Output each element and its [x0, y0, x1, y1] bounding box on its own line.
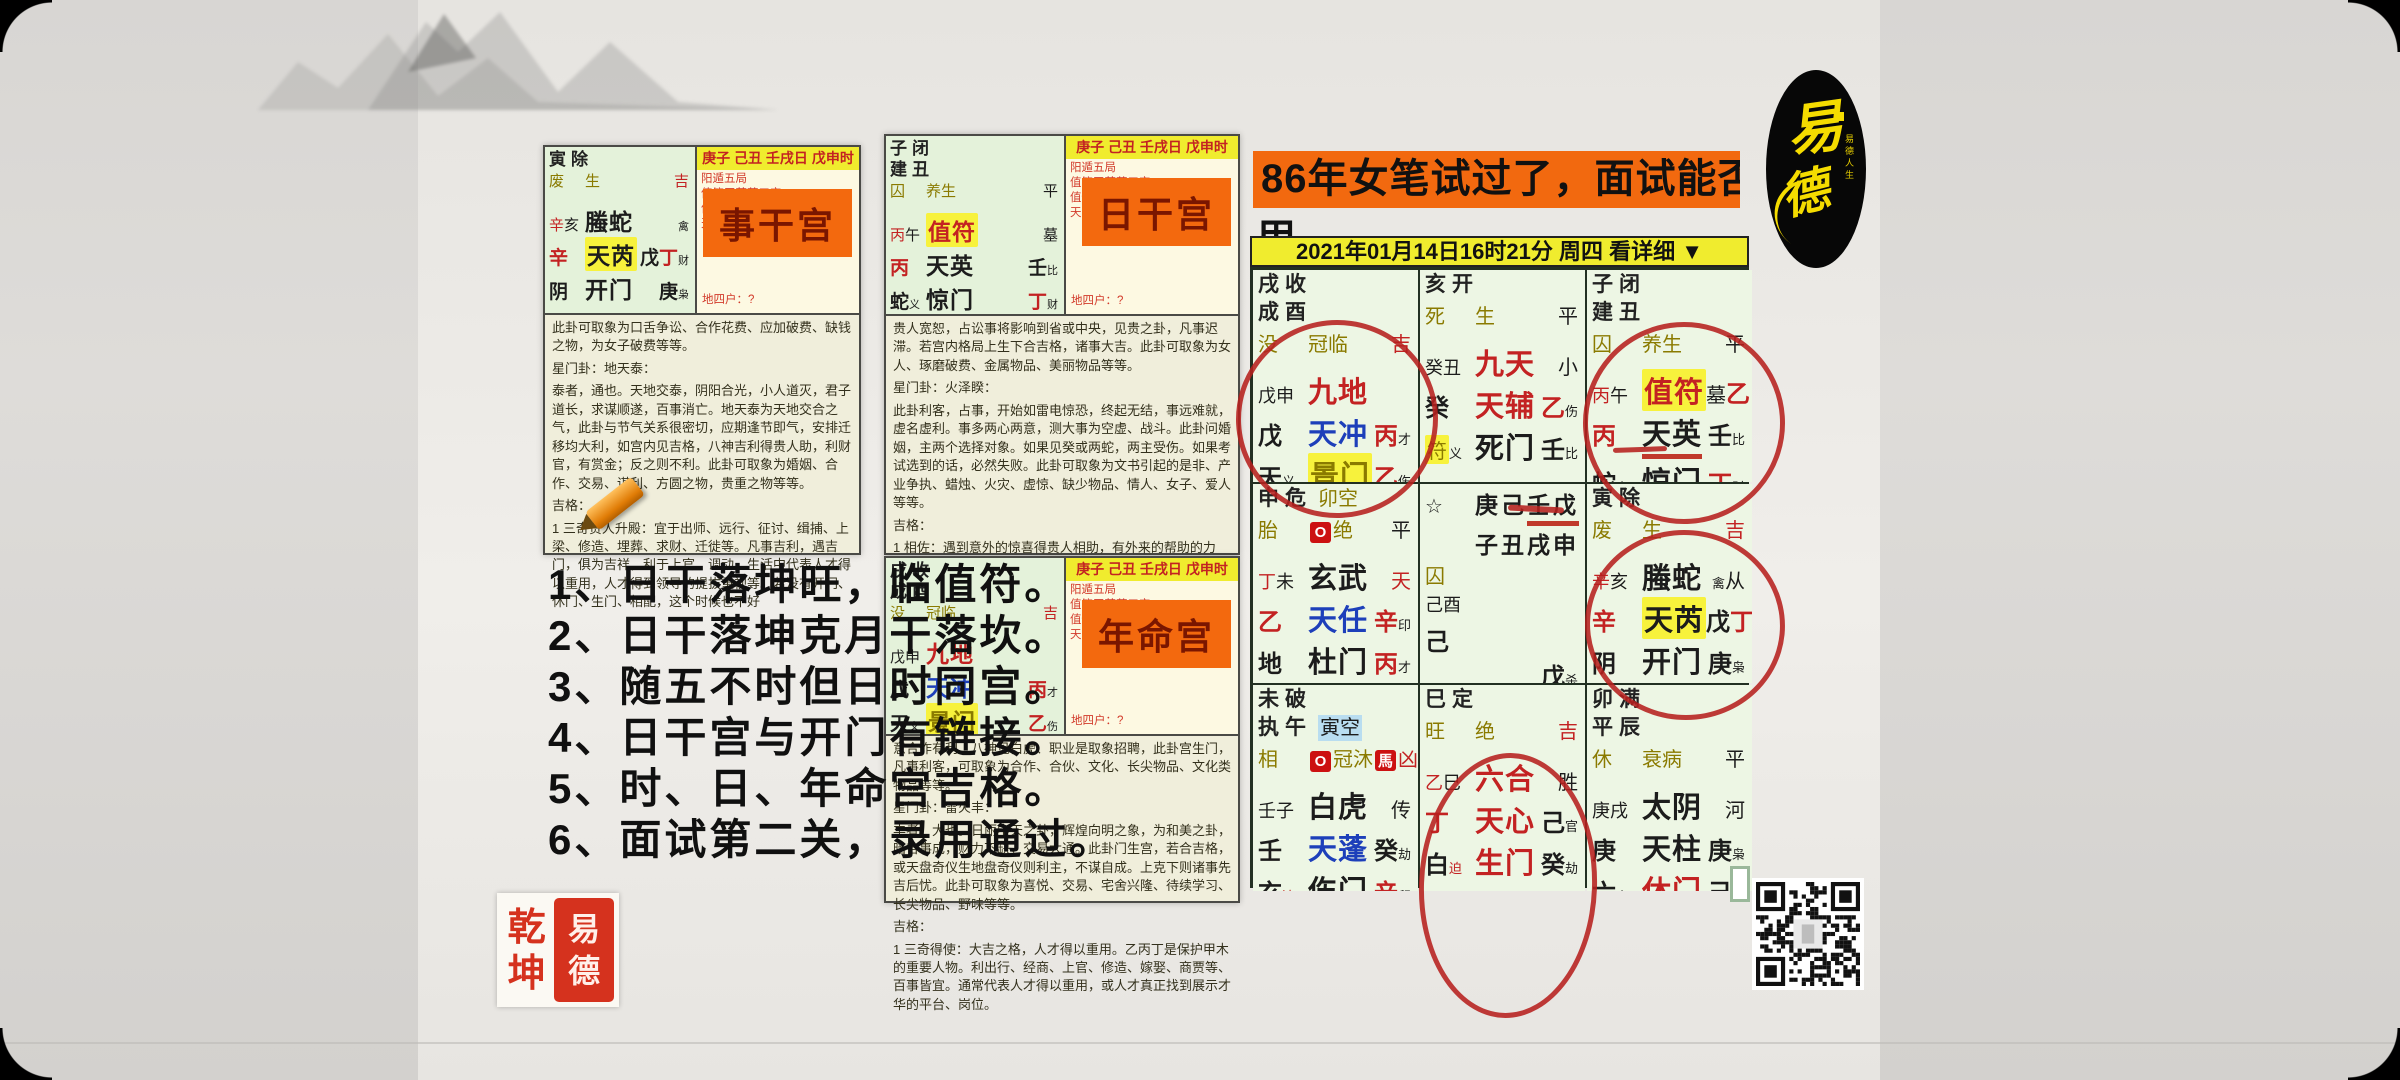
panel-rigan-gong: 子闭建丑囚养生平丙午值符墓丙天英壬比蛇义惊门丁财 庚子 己丑 壬戌日 戊申时 阳…	[884, 134, 1240, 555]
palace-cell-yin: 寅除废生吉辛亥螣蛇禽从辛天芮戊丁财阴开门庚枭	[1587, 484, 1752, 683]
mini-chart-shigan: 寅除废生吉辛亥螣蛇禽辛天芮戊丁财阴开门庚枭	[545, 147, 697, 313]
palace-label: 事干宫	[703, 189, 852, 257]
panel-info: 庚子 己丑 壬戌日 戊申时 阳遁五局值符天芮落五宫值使死门落五宫天乙：? 日干宫…	[1066, 136, 1238, 314]
logo-seal-dot	[1835, 112, 1844, 121]
seal-solid-characters: 易德	[554, 898, 614, 1002]
note-item: 4、日干宫与开门有链接。	[548, 713, 1236, 763]
corner-mask	[2348, 0, 2400, 52]
partial-qr-edge	[1730, 866, 1750, 902]
palace-cell-mao: 卯满平辰休衰病平庚戌太阴河庚天柱庚枭六义休门己官	[1587, 685, 1752, 891]
panel-shigan-gong: 寅除废生吉辛亥螣蛇禽辛天芮戊丁财阴开门庚枭 庚子 己丑 壬戌日 戊申时 阳遁五局…	[543, 145, 861, 555]
palace-cell-shen: 申危卯空胎O绝平丁未玄武天乙天任辛印地杜门丙才	[1253, 484, 1418, 683]
four-pillars-bar: 庚子 己丑 壬戌日 戊申时	[1066, 136, 1238, 159]
corner-mask	[0, 1028, 52, 1080]
question-banner: 86年女笔试过了，面试能否录	[1253, 151, 1740, 208]
brand-logo: 易 德 易德人生	[1766, 70, 1866, 268]
palace-interpretation-text: 贵人宽恕，占讼事将影响到省或中央，见贵之卦，凡事迟滞。若宫内格局上生下合吉格，诸…	[886, 316, 1238, 584]
analysis-notes-list: 1、日干落坤旺，临值符。2、日干落坤克月干落坎。3、随五不时但日时同宫。4、日干…	[548, 560, 1236, 866]
seal-outline-characters: 乾坤	[502, 898, 551, 1002]
panel-info: 庚子 己丑 壬戌日 戊申时 阳遁五局值符天芮落五宫值使死门落五宫天乙：? 事干宫…	[697, 147, 859, 313]
palace-cell-center: ☆庚己壬戊子丑戌申囚己酉己戊杀	[1420, 484, 1585, 683]
red-seal-stamp: 乾坤 易德	[497, 893, 619, 1007]
note-item: 1、日干落坤旺，临值符。	[548, 560, 1236, 610]
video-frame: 寅除废生吉辛亥螣蛇禽辛天芮戊丁财阴开门庚枭 庚子 己丑 壬戌日 戊申时 阳遁五局…	[0, 0, 2400, 1080]
ink-wash-mountains	[258, 0, 778, 110]
note-item: 5、时、日、年命宫吉格。	[548, 764, 1236, 814]
date-text: 2021年01月14日16时21分 周四 看详细	[1296, 239, 1675, 264]
palace-cell-wei: 未破执午寅空相O冠沐馬凶壬子白虎传壬天蓬癸劫玄迫伤门辛印	[1253, 685, 1418, 891]
qimen-grid: 戌收成酉没冠临吉戊申九地戊天冲丙才天义景门乙伤 亥开死生平癸丑九天小癸天辅乙伤符…	[1250, 267, 1749, 888]
corner-mask	[2348, 1028, 2400, 1080]
palace-cell-xu: 戌收成酉没冠临吉戊申九地戊天冲丙才天义景门乙伤	[1253, 270, 1418, 482]
palace-cell-si: 巳定旺绝吉乙巳六合胜丁天心己官白迫生门癸劫	[1420, 685, 1585, 891]
chart-meta-bottom: 地四户：?	[1071, 292, 1123, 308]
note-item: 3、随五不时但日时同宫。	[548, 662, 1236, 712]
palace-cell-zi: 子闭建丑囚养生平丙午值符墓乙丙天英壬比蛇义惊门丁财	[1587, 270, 1752, 482]
chevron-down-icon: ▼	[1681, 239, 1703, 264]
date-bar[interactable]: 2021年01月14日16时21分 周四 看详细 ▼	[1250, 236, 1749, 267]
qr-code	[1752, 878, 1864, 990]
divider	[0, 1042, 2400, 1044]
qr-pattern	[1756, 882, 1860, 986]
palace-label: 日干宫	[1082, 178, 1231, 246]
palace-cell-hai: 亥开死生平癸丑九天小癸天辅乙伤符义死门壬比	[1420, 270, 1585, 482]
mini-chart-rigan: 子闭建丑囚养生平丙午值符墓丙天英壬比蛇义惊门丁财	[886, 136, 1066, 314]
chart-meta-bottom: 地四户：?	[702, 291, 754, 307]
logo-vertical-text: 易德人生	[1843, 134, 1856, 182]
four-pillars-bar: 庚子 己丑 壬戌日 戊申时	[697, 147, 859, 170]
note-item: 2、日干落坤克月干落坎。	[548, 611, 1236, 661]
note-item: 6、面试第二关，录用通过。	[548, 815, 1236, 865]
corner-mask	[0, 0, 52, 52]
